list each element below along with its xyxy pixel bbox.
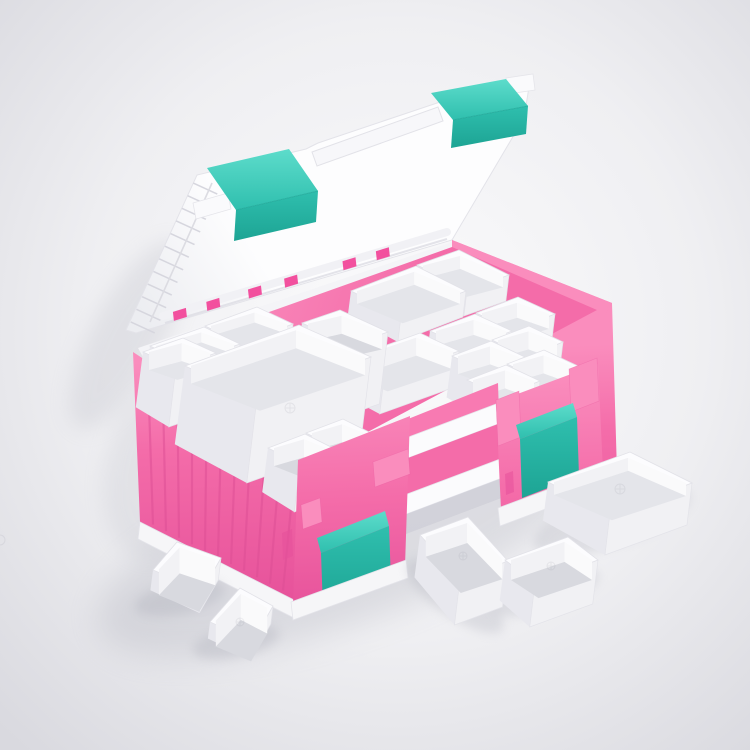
right-tower-slot — [505, 471, 514, 495]
left-tower-slot — [282, 529, 293, 560]
right-tower-post-left — [496, 391, 521, 446]
product-shot — [0, 0, 750, 750]
scene-canvas — [0, 0, 750, 750]
